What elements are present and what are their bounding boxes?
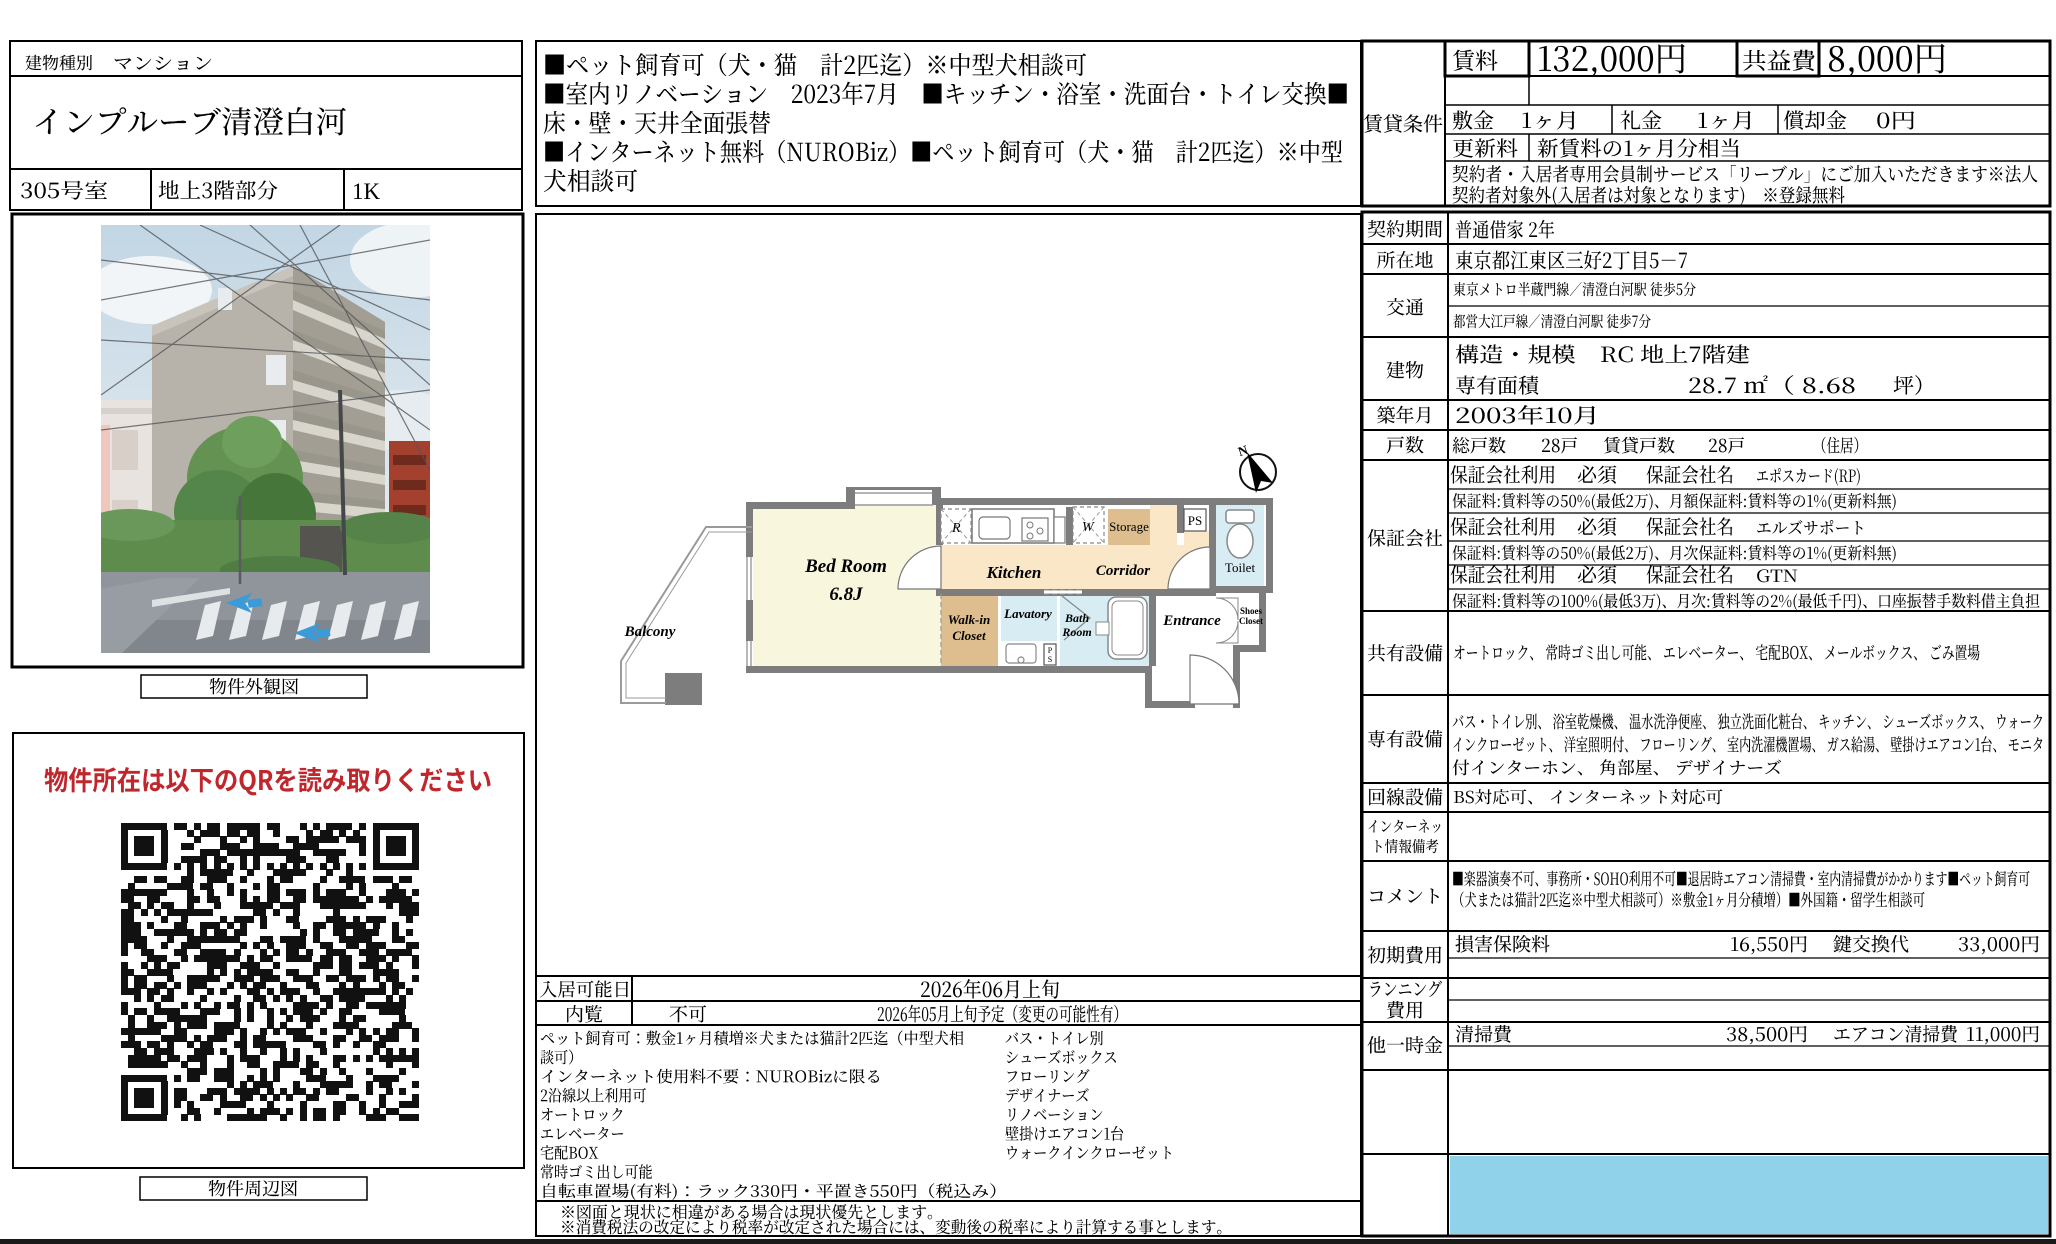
svg-text:PS: PS — [1188, 513, 1202, 528]
svg-text:Kitchen: Kitchen — [986, 563, 1042, 582]
svg-text:Toilet: Toilet — [1225, 560, 1256, 575]
svg-text:1K: 1K — [352, 179, 381, 204]
svg-text:Closet: Closet — [952, 628, 986, 643]
svg-text:Shoes: Shoes — [1240, 606, 1263, 616]
svg-text:P: P — [1048, 646, 1053, 655]
svg-text:Closet: Closet — [1239, 616, 1263, 626]
svg-text:Lavatory: Lavatory — [1003, 606, 1052, 621]
svg-text:N: N — [1236, 442, 1250, 459]
svg-text:6.8J: 6.8J — [829, 584, 863, 605]
svg-text:Balcony: Balcony — [624, 624, 676, 640]
svg-text:Room: Room — [1061, 625, 1091, 639]
svg-text:S: S — [1048, 655, 1052, 664]
svg-text:R: R — [951, 521, 961, 536]
svg-text:Walk-in: Walk-in — [948, 612, 990, 627]
svg-text:Corridor: Corridor — [1096, 563, 1150, 579]
svg-text:Bed Room: Bed Room — [804, 556, 887, 577]
svg-text:Storage: Storage — [1109, 519, 1149, 534]
svg-text:Entrance: Entrance — [1162, 613, 1221, 629]
svg-text:Bath: Bath — [1064, 611, 1089, 625]
svg-text:W: W — [1082, 520, 1095, 535]
